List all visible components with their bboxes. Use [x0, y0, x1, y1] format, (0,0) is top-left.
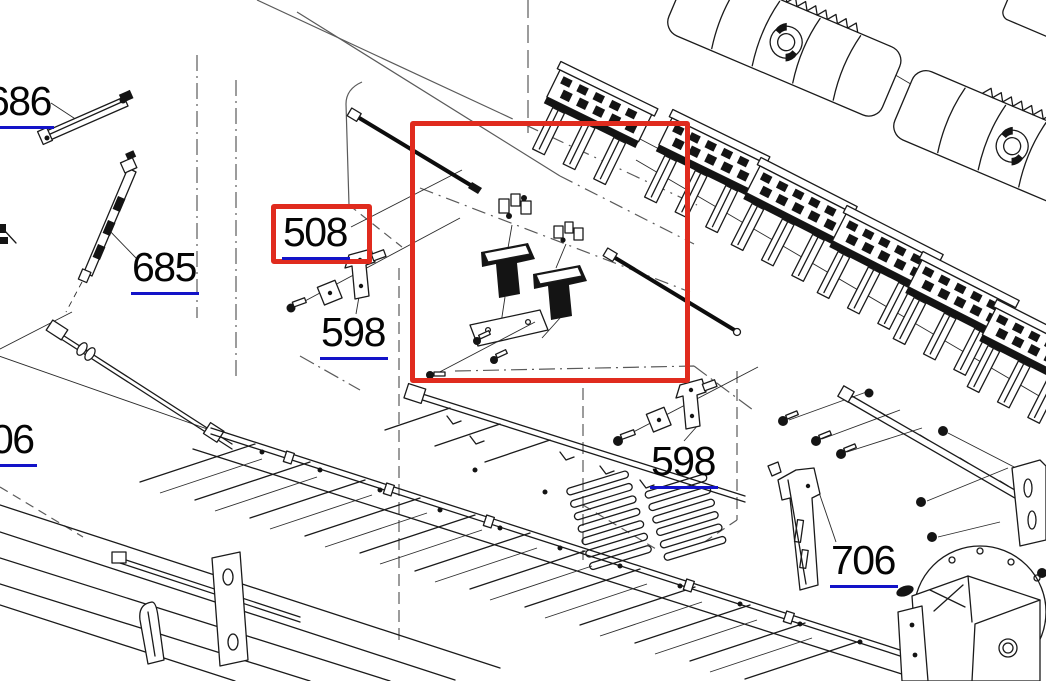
- paper-guide-panel: [663, 0, 909, 121]
- edge-clipped-part: [0, 224, 16, 244]
- part-label-685: 685: [131, 247, 199, 295]
- highlight-region-box: [410, 121, 690, 383]
- paper-guide-panels: [663, 0, 1046, 225]
- part-label-706-clipped: 06: [0, 419, 37, 467]
- part-label-706: 706: [830, 540, 898, 588]
- diagram-page: 686 685 508 598 06 598 706: [0, 0, 1046, 681]
- carriage-shaft: [46, 320, 232, 449]
- part-label-686: 686: [0, 81, 54, 129]
- part-label-598-right: 598: [650, 441, 718, 489]
- part-685-telescopic-rod: [66, 150, 137, 312]
- part-label-508: 508: [282, 212, 350, 260]
- paper-guide-panel: [889, 59, 1046, 225]
- part-label-598-left: 598: [320, 312, 388, 360]
- fan-housing-disc: [895, 546, 1046, 681]
- chassis-base-assembly: [0, 384, 1046, 681]
- panel-fragment: [1000, 0, 1046, 48]
- support-bracket-706: [768, 462, 820, 590]
